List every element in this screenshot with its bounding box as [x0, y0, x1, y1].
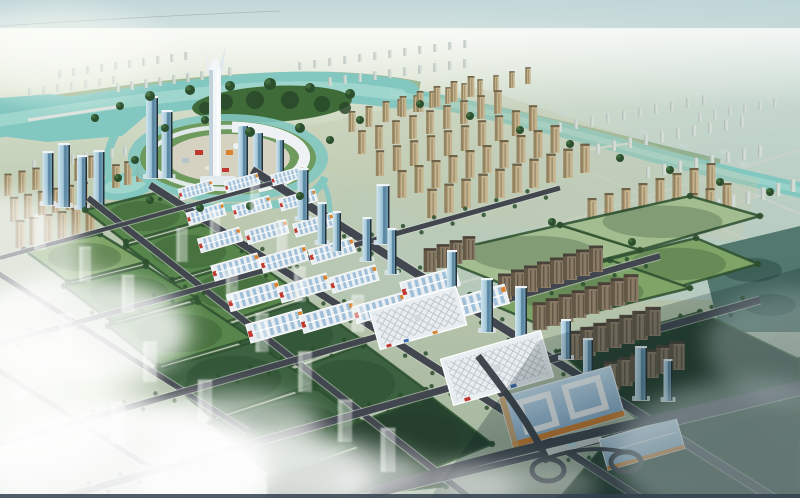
road-tree [240, 249, 244, 253]
pale-tower [200, 71, 203, 80]
tan-tower [546, 154, 555, 183]
road-tree [494, 198, 498, 202]
road-tree [430, 371, 434, 375]
road-tree [398, 393, 402, 397]
tan-tower [673, 173, 682, 201]
road-tree [481, 213, 485, 217]
tan-tower [512, 164, 521, 193]
pale-tower [702, 95, 706, 105]
pale-tower [694, 158, 698, 169]
residential-slab [611, 278, 626, 306]
parcel-tree [687, 193, 693, 199]
tan-tower [461, 83, 466, 100]
pale-tower [574, 119, 578, 129]
residential-slab [585, 286, 600, 314]
pale-tower [662, 164, 666, 175]
tree-clump [245, 127, 255, 137]
residential-slab [559, 294, 574, 322]
tree-clump [616, 154, 624, 162]
road-tree [329, 354, 333, 358]
road-tree [513, 204, 517, 208]
tan-tower [517, 135, 526, 163]
road-tree [386, 410, 390, 414]
tan-tower [32, 168, 39, 190]
pale-tower [448, 61, 451, 70]
ghost-tower [250, 182, 260, 210]
road-tree [342, 234, 346, 238]
road-tree [417, 401, 421, 405]
road-tree [424, 351, 428, 355]
tan-tower [358, 130, 366, 154]
pale-tower [726, 152, 730, 163]
road-tree [625, 257, 629, 261]
tan-tower [398, 170, 407, 198]
tree-clump [114, 174, 122, 182]
parcel-tree [757, 213, 763, 219]
road-tree [644, 264, 648, 268]
pale-tower [388, 69, 391, 78]
tree-clump [516, 126, 524, 134]
tan-tower [393, 145, 401, 171]
tan-tower [478, 120, 486, 146]
tan-tower [432, 160, 441, 188]
pale-tower [676, 129, 680, 139]
tan-tower [477, 79, 482, 96]
residential-slab [546, 298, 561, 326]
pale-tower [622, 110, 626, 120]
residential-slab [598, 282, 613, 310]
tree-clump [131, 156, 139, 164]
residential-slab [563, 254, 577, 281]
tree-clump [296, 192, 304, 200]
road-tree [432, 215, 436, 219]
pale-tower [740, 117, 744, 127]
pale-tower [612, 141, 616, 151]
aerial-masterplan-rendering [0, 0, 800, 498]
pale-tower [374, 52, 377, 60]
tan-tower [427, 189, 436, 218]
tan-tower [478, 174, 487, 203]
tan-tower [376, 150, 384, 176]
pale-tower [678, 161, 682, 172]
pale-tower [403, 67, 406, 76]
pale-tower [344, 56, 347, 64]
tan-tower [366, 106, 373, 127]
pale-tower [314, 60, 317, 68]
tan-tower [434, 86, 441, 107]
ghost-tower [255, 313, 268, 352]
pale-tower [628, 138, 632, 148]
tan-tower [477, 95, 485, 119]
pale-tower [404, 48, 407, 56]
tree-clump [466, 112, 474, 120]
pale-tower [743, 104, 746, 113]
tan-tower [449, 155, 458, 183]
tan-tower [461, 125, 469, 151]
road-tree [185, 382, 189, 386]
tan-tower [409, 115, 417, 139]
road-tree [158, 197, 162, 201]
tan-tower [461, 179, 470, 208]
tan-tower [444, 184, 453, 213]
pale-tower [463, 59, 466, 68]
road-tree [342, 338, 346, 342]
tan-tower [383, 101, 390, 122]
parcel-tree [557, 222, 563, 228]
pale-tower [299, 62, 302, 70]
tree-clump [666, 166, 674, 174]
ghost-tower [176, 228, 187, 262]
tree-clump [766, 188, 774, 196]
parcel-tree [687, 285, 693, 291]
tan-tower [525, 67, 530, 84]
tan-tower [509, 71, 514, 88]
pale-tower [670, 101, 674, 111]
road-tree [235, 380, 239, 384]
pale-tower [646, 167, 650, 178]
tree-clump [91, 114, 99, 122]
pale-tower [724, 120, 728, 130]
pale-tower [746, 191, 751, 204]
road-tree [463, 207, 467, 211]
tan-tower [445, 87, 450, 104]
pale-tower [638, 107, 642, 117]
pale-tower [773, 98, 776, 107]
road-tree [324, 427, 328, 431]
pale-tower [71, 154, 75, 164]
residential-slab [533, 302, 548, 330]
road-tree [310, 347, 314, 351]
tan-tower [410, 140, 418, 166]
pale-tower [758, 101, 761, 110]
tree-clump [161, 124, 169, 132]
pale-tower [596, 144, 600, 154]
road-tree [429, 384, 433, 388]
tree-clump [305, 83, 315, 93]
residential-slab [572, 290, 587, 318]
tan-tower [563, 149, 572, 178]
residential-slab [463, 236, 476, 260]
parcel-grove [603, 206, 723, 238]
ghost-tower [277, 220, 288, 252]
tan-tower [415, 165, 424, 193]
tan-tower [392, 120, 400, 144]
parcel-tree [755, 261, 761, 267]
road-tree [367, 402, 371, 406]
road-tree [544, 195, 548, 199]
pale-tower [742, 149, 746, 160]
tree-clump [416, 100, 424, 108]
pale-tower [358, 73, 361, 82]
tan-tower [18, 171, 25, 193]
residential-slab [624, 274, 639, 302]
road-tree [355, 418, 359, 422]
tan-tower [466, 150, 475, 178]
pale-tower [329, 58, 332, 66]
pale-tower [186, 73, 189, 82]
tan-tower [493, 75, 498, 92]
road-tree [264, 273, 268, 277]
road-tree [500, 317, 504, 321]
pale-tower [434, 44, 437, 52]
road-tree [260, 247, 264, 251]
road-tree [525, 189, 529, 193]
tan-tower [483, 145, 492, 173]
parcel-tree [313, 385, 319, 391]
residential-slab [424, 248, 437, 272]
tan-tower [707, 163, 716, 191]
pale-tower [359, 54, 362, 62]
tan-tower [580, 144, 589, 173]
tan-tower [400, 96, 407, 117]
city-rendering-canvas [0, 0, 800, 498]
pale-tower [373, 71, 376, 80]
pale-tower [123, 146, 127, 156]
ghost-tower [210, 210, 220, 240]
distant-block [680, 144, 688, 148]
tree-clump [548, 218, 556, 226]
road-tree [485, 406, 489, 410]
pale-tower [728, 107, 731, 116]
residential-slab [589, 246, 603, 273]
parcel-tree [195, 299, 201, 305]
pale-tower [644, 135, 648, 145]
tree-clump [566, 140, 574, 148]
tree-clump [716, 178, 724, 186]
road-tree [183, 285, 187, 289]
road-tree [450, 221, 454, 225]
pale-tower [660, 132, 664, 142]
road-tree [612, 273, 616, 277]
pale-tower [343, 75, 346, 84]
ghost-tower [352, 295, 365, 332]
pale-tower [758, 146, 762, 157]
ghost-tower [298, 351, 312, 392]
bottom-edge-strip [0, 494, 800, 498]
pale-tower [433, 63, 436, 72]
tree-clump [264, 78, 276, 90]
pale-tower [590, 116, 594, 126]
road-tree [361, 345, 365, 349]
tan-tower [444, 130, 452, 156]
pale-tower [686, 98, 690, 108]
tree-clump [196, 204, 204, 212]
tan-tower [690, 168, 699, 196]
road-tree [581, 282, 585, 286]
tan-tower [375, 125, 383, 149]
tan-tower [460, 100, 468, 124]
parcel-tree [82, 207, 88, 213]
tree-clump [345, 89, 355, 99]
tree-clump [201, 116, 209, 124]
tree-clump [628, 238, 636, 246]
residential-slab [576, 250, 590, 277]
tan-tower [495, 115, 503, 141]
tree-clump [225, 81, 235, 91]
pale-tower [708, 123, 712, 133]
pale-tower [449, 42, 452, 50]
pale-tower [692, 126, 696, 136]
tan-tower [443, 105, 451, 129]
tan-tower [349, 111, 356, 132]
tree-clump [356, 116, 364, 124]
tan-tower [426, 110, 434, 134]
pale-tower [698, 113, 701, 122]
road-tree [201, 291, 205, 295]
tan-tower [551, 125, 560, 153]
parcel-tree [637, 247, 643, 253]
road-tree [267, 371, 271, 375]
pale-tower [110, 148, 114, 158]
tree-clump [295, 123, 305, 133]
tan-tower [529, 159, 538, 188]
road-tree [216, 373, 220, 377]
pale-tower [389, 50, 392, 58]
ghost-tower [226, 267, 238, 303]
pale-tower [418, 65, 421, 74]
tan-tower [495, 169, 504, 198]
ghost-tower [294, 267, 306, 303]
pale-tower [713, 110, 716, 119]
tan-tower [451, 81, 458, 102]
tan-tower [468, 76, 475, 97]
road-tree [401, 224, 405, 228]
road-tree [279, 355, 283, 359]
pale-tower [328, 77, 331, 86]
tan-tower [494, 90, 502, 114]
pale-tower [419, 46, 422, 54]
tree-clump [185, 85, 195, 95]
residential-slab [537, 262, 551, 289]
tree-clump [326, 136, 334, 144]
pale-tower [761, 187, 766, 200]
ghost-tower [338, 399, 352, 442]
tan-tower [427, 135, 435, 161]
road-tree [248, 364, 252, 368]
road-tree [321, 301, 325, 305]
parcel-tree [607, 257, 613, 263]
pale-tower [654, 104, 658, 114]
pale-tower [228, 67, 231, 76]
parcel-tree [143, 263, 149, 269]
tan-tower [534, 130, 543, 158]
pale-tower [776, 183, 781, 196]
road-tree [549, 291, 553, 295]
residential-slab [550, 258, 564, 285]
distant-block [640, 130, 648, 134]
tan-tower [529, 105, 537, 131]
pale-tower [791, 179, 796, 192]
road-tree [419, 230, 423, 234]
road-tree [357, 247, 361, 251]
road-tree [418, 265, 422, 269]
pale-tower [464, 40, 467, 48]
tree-clump [146, 196, 154, 204]
pale-tower [606, 113, 610, 123]
road-tree [403, 353, 407, 357]
tan-tower [500, 140, 509, 168]
